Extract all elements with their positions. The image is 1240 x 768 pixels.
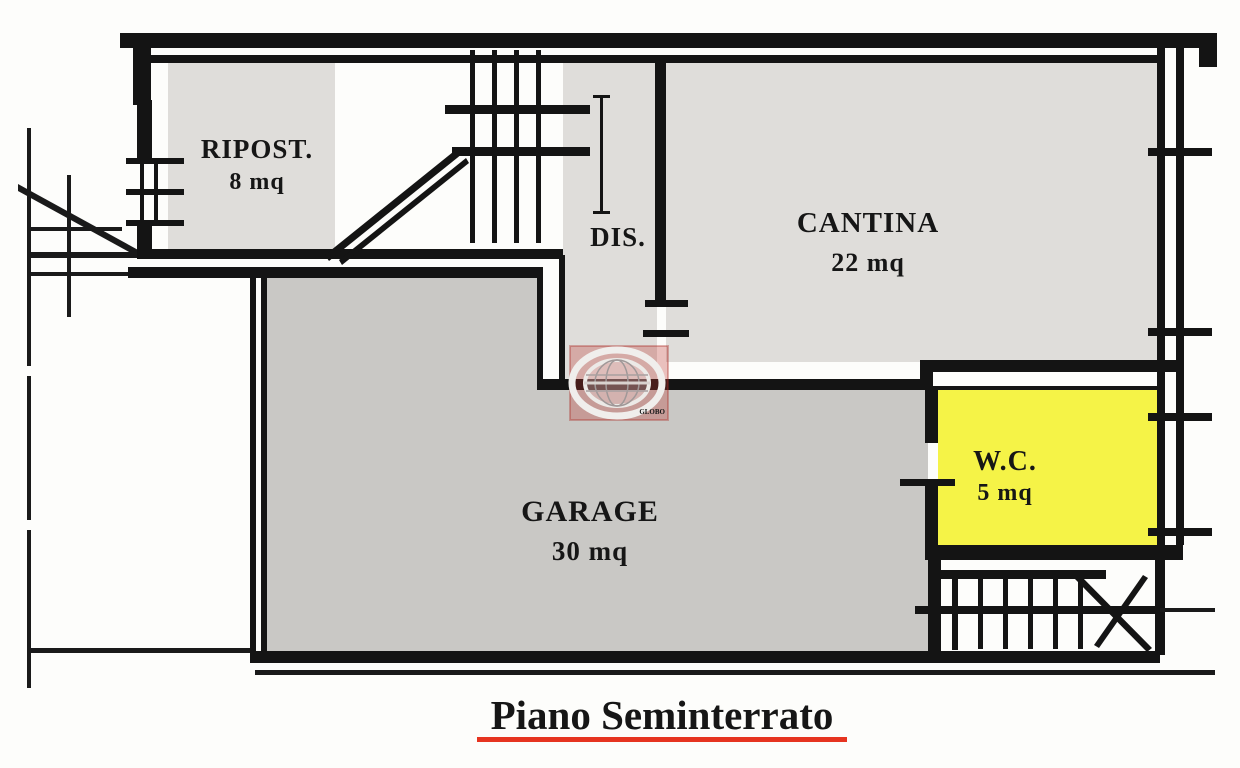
- stair-rail: [445, 105, 590, 114]
- cantina-step-wall: [920, 360, 933, 390]
- window-sill: [1148, 528, 1212, 536]
- dis-cantina-wall: [655, 55, 666, 307]
- window-sill: [1148, 413, 1212, 421]
- top-right-cap: [1199, 33, 1217, 67]
- watermark-logo: GLOBO: [570, 346, 668, 420]
- window-sill: [126, 189, 184, 195]
- page-title: Piano Seminterrato: [491, 692, 834, 738]
- stair-tread: [978, 575, 983, 649]
- stair-diagonal: [339, 158, 469, 265]
- floor-plan: GLOBO RIPOST. 8 mq DIS. CANTINA 22 mq GA…: [0, 0, 1240, 768]
- wc-top-line: [933, 386, 1157, 390]
- wc-floor: [938, 390, 1157, 545]
- cantina-bottom-wall: [920, 360, 1183, 372]
- handrail-line: [600, 97, 603, 213]
- notch-wall-outer: [537, 267, 543, 390]
- watermark-caption: GLOBO: [639, 408, 665, 416]
- plan-title: Piano Seminterrato: [477, 692, 847, 742]
- ripost-left-wall-upper: [137, 100, 152, 162]
- cantina-label: CANTINA: [797, 207, 939, 239]
- ripost-area: 8 mq: [229, 169, 284, 195]
- garage-floor-upper: [267, 278, 539, 393]
- handrail-cap: [593, 211, 610, 214]
- window-sill: [1148, 328, 1212, 336]
- stair-stringer: [952, 572, 958, 650]
- right-wall-outer: [1176, 45, 1184, 545]
- handrail-cap: [593, 95, 610, 98]
- notch-wall-inner: [559, 255, 565, 390]
- stair-tread: [1053, 575, 1058, 649]
- garage-left-wall-outer: [250, 267, 256, 657]
- door-jamb-tick: [643, 330, 689, 337]
- floor-plan-drawing: GLOBO RIPOST. 8 mq DIS. CANTINA 22 mq GA…: [0, 0, 1240, 768]
- wc-bottom-wall: [925, 545, 1183, 560]
- garage-left-wall-inner: [261, 267, 267, 657]
- wc-left-wall-lower: [925, 480, 938, 545]
- garage-top-wall-left: [128, 267, 543, 278]
- top-wall-inner-line: [150, 55, 1157, 63]
- title-underline: [477, 737, 847, 742]
- ripost-label: RIPOST.: [201, 134, 313, 164]
- top-left-cap: [133, 33, 151, 105]
- window-sill: [126, 220, 184, 226]
- stair-tread: [536, 50, 541, 243]
- stair-tread: [1028, 575, 1033, 649]
- stair-tread: [1003, 575, 1008, 649]
- stair-tread: [470, 50, 475, 243]
- stair-tread: [492, 50, 497, 243]
- stairs-right-wall: [1155, 557, 1165, 655]
- grade-line: [255, 670, 1215, 675]
- wc-left-wall-upper: [925, 390, 938, 443]
- stair-diagonal: [325, 148, 462, 261]
- window-sill: [1148, 148, 1212, 156]
- stair-rail: [452, 147, 590, 156]
- wc-area: 5 mq: [977, 480, 1032, 506]
- window-sill: [126, 158, 184, 164]
- top-wall: [120, 33, 1217, 48]
- wc-door-tick: [900, 479, 955, 486]
- stair-tread: [514, 50, 519, 243]
- rail-extension: [1160, 608, 1215, 612]
- garage-label: GARAGE: [521, 495, 659, 528]
- exterior-ramp-line: [18, 184, 140, 258]
- garage-area: 30 mq: [552, 536, 628, 566]
- wc-label: W.C.: [973, 446, 1037, 477]
- ripost-left-wall-lower: [137, 226, 152, 259]
- dis-label: DIS.: [590, 222, 646, 252]
- door-jamb-tick: [645, 300, 688, 307]
- cantina-area: 22 mq: [831, 248, 905, 277]
- right-wall-inner: [1157, 45, 1165, 545]
- bottom-wall: [250, 651, 1160, 663]
